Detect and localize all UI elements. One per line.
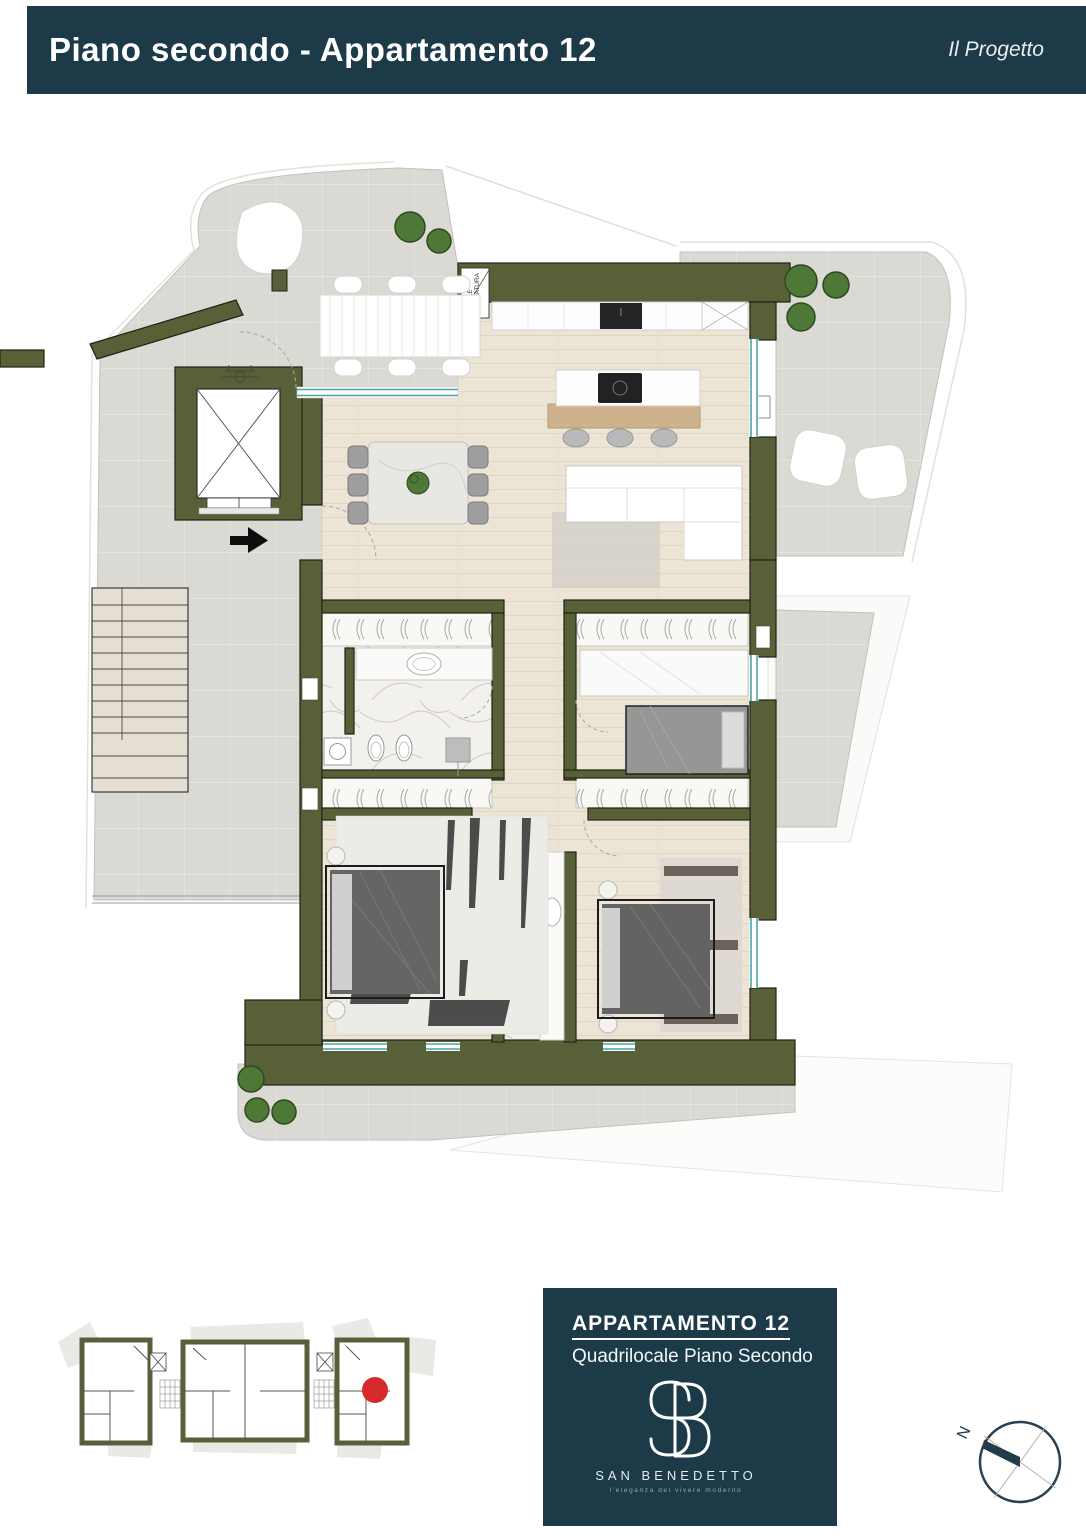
sb-monogram-icon xyxy=(616,1378,736,1462)
tree-icon xyxy=(238,1066,264,1092)
tree-icon xyxy=(785,265,817,297)
living-rug xyxy=(552,512,660,588)
window-right-upper xyxy=(750,339,759,437)
island-bar xyxy=(548,404,700,428)
brand-name: SAN BENEDETTO xyxy=(558,1468,794,1483)
bidet xyxy=(396,735,412,761)
planter xyxy=(272,270,287,291)
hob xyxy=(598,373,642,403)
header-bar: Piano secondo - Appartamento 12 Il Proge… xyxy=(27,6,1086,94)
tree-icon xyxy=(272,1100,296,1124)
washing-machine xyxy=(324,738,351,765)
brand-logo: SAN BENEDETTO l'eleganza del vivere mode… xyxy=(558,1378,794,1494)
outdoor-table xyxy=(320,295,480,357)
bedroom-master xyxy=(326,816,548,1034)
toilet xyxy=(368,735,384,761)
key-plan xyxy=(50,1296,470,1486)
bar-stools xyxy=(563,429,677,447)
lounge-blob xyxy=(236,202,302,274)
window-bottom-2 xyxy=(426,1042,460,1051)
north-needle xyxy=(982,1440,1020,1467)
sink xyxy=(407,653,441,675)
tree-icon xyxy=(823,272,849,298)
window-sliding-terrace xyxy=(297,387,458,398)
window-right-mid xyxy=(750,655,759,701)
apartment-marker xyxy=(362,1377,388,1403)
tree-icon xyxy=(427,229,451,253)
wall-kitchen-top xyxy=(458,263,790,302)
section-label: Il Progetto xyxy=(948,38,1044,62)
shower xyxy=(446,738,470,762)
window-bottom-1 xyxy=(323,1042,387,1051)
apartment-info-box: APPARTAMENTO 12 Quadrilocale Piano Secon… xyxy=(543,1288,837,1526)
tree-icon xyxy=(395,212,425,242)
page: LOCALE SPAZZATURA xyxy=(0,0,1086,1536)
window-right-lower xyxy=(750,918,759,988)
tree-icon xyxy=(787,303,815,331)
north-label: N xyxy=(954,1424,974,1442)
brand-tagline: l'eleganza del vivere moderno xyxy=(558,1487,794,1494)
window-bottom-3 xyxy=(603,1042,635,1051)
table-plant xyxy=(407,472,429,494)
tree-icon xyxy=(245,1098,269,1122)
apartment-subtitle: Quadrilocale Piano Secondo xyxy=(572,1346,837,1368)
apartment-title: APPARTAMENTO 12 xyxy=(572,1312,790,1340)
page-title: Piano secondo - Appartamento 12 xyxy=(49,31,597,69)
wall-left-upper xyxy=(300,392,322,505)
compass: N xyxy=(948,1396,1086,1536)
